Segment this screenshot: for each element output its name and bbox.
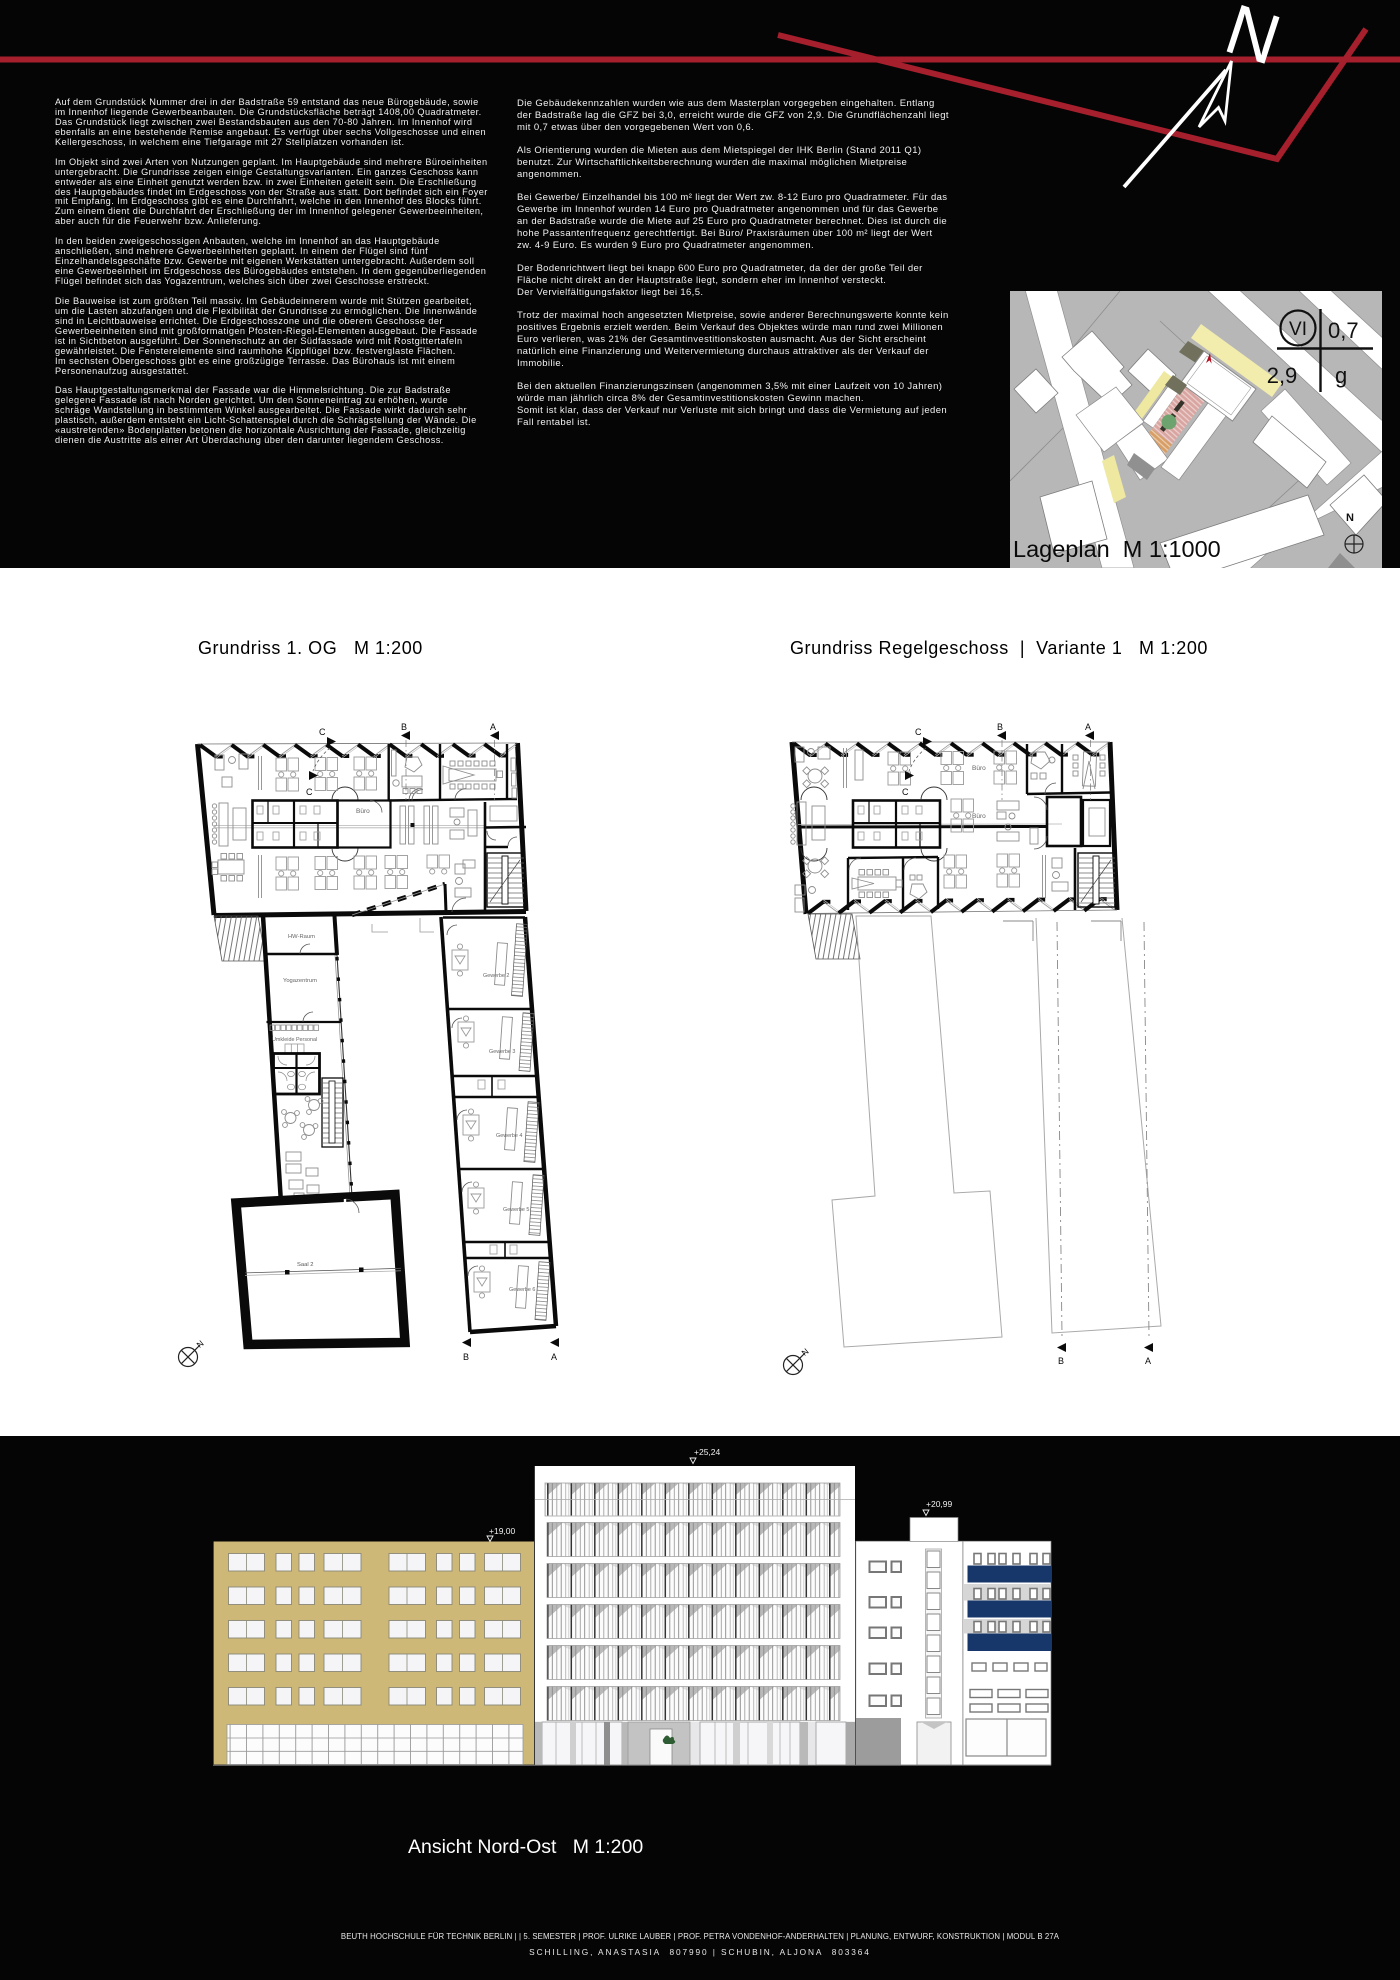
svg-text:Büro: Büro (972, 813, 986, 820)
svg-text:g: g (1335, 363, 1347, 388)
svg-text:Gewerbe 4: Gewerbe 4 (496, 1133, 522, 1139)
svg-text:+19,00: +19,00 (489, 1526, 516, 1536)
svg-text:HW-Raum: HW-Raum (288, 934, 315, 940)
svg-text:A: A (1085, 722, 1091, 732)
svg-text:B: B (463, 1352, 469, 1362)
svg-text:N: N (1346, 512, 1354, 524)
svg-text:Lageplan M 1:1000: Lageplan M 1:1000 (1013, 536, 1221, 562)
svg-text:C: C (902, 787, 909, 797)
svg-text:Büro: Büro (972, 765, 986, 772)
svg-text:A: A (1145, 1356, 1151, 1366)
svg-text:C: C (915, 727, 922, 737)
svg-text:Gewerbe 6: Gewerbe 6 (509, 1287, 535, 1293)
svg-text:Gewerbe 5: Gewerbe 5 (503, 1207, 529, 1213)
svg-text:B: B (401, 722, 407, 732)
svg-text:Büro: Büro (356, 808, 370, 815)
svg-text:C: C (306, 787, 313, 797)
svg-text:VI: VI (1289, 319, 1307, 340)
svg-text:B: B (997, 722, 1003, 732)
svg-text:Gewerbe 2: Gewerbe 2 (483, 973, 509, 979)
svg-text:+25,24: +25,24 (694, 1447, 721, 1457)
svg-text:A: A (490, 722, 496, 732)
svg-text:C: C (319, 727, 326, 737)
svg-text:A: A (551, 1352, 557, 1362)
svg-text:Yogazentrum: Yogazentrum (283, 978, 317, 984)
svg-text:Gewerbe 3: Gewerbe 3 (489, 1049, 515, 1055)
svg-text:Saal 2: Saal 2 (297, 1262, 313, 1268)
svg-text:Umkleide Personal: Umkleide Personal (272, 1037, 317, 1043)
svg-text:+20,99: +20,99 (926, 1499, 953, 1509)
svg-text:B: B (1058, 1356, 1064, 1366)
svg-text:2,9: 2,9 (1267, 363, 1298, 388)
svg-text:0,7: 0,7 (1328, 318, 1359, 343)
